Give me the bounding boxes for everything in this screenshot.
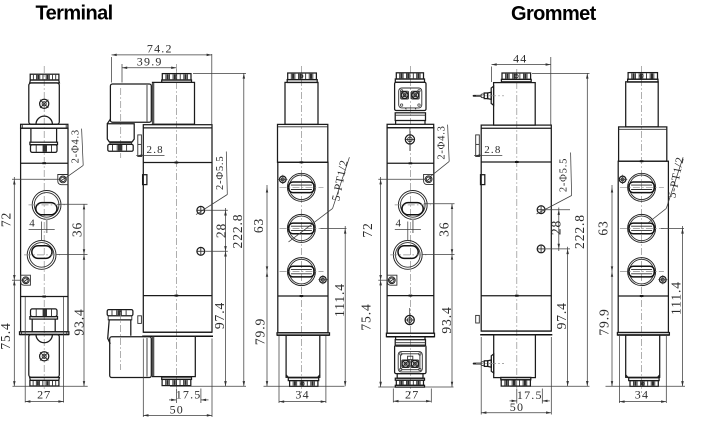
svg-text:36: 36	[436, 222, 451, 237]
svg-text:36: 36	[70, 222, 85, 237]
svg-text:97.4: 97.4	[554, 302, 569, 329]
svg-text:39.9: 39.9	[137, 54, 163, 68]
svg-text:93.4: 93.4	[439, 306, 454, 333]
svg-text:2-Φ5.5: 2-Φ5.5	[215, 156, 226, 190]
svg-text:72: 72	[360, 222, 375, 237]
svg-text:75.4: 75.4	[0, 322, 13, 349]
svg-text:72: 72	[0, 212, 13, 227]
svg-text:79.9: 79.9	[252, 318, 267, 345]
svg-text:63: 63	[251, 218, 266, 233]
svg-text:27: 27	[37, 388, 51, 402]
svg-text:44: 44	[513, 51, 527, 65]
svg-text:2-Φ5.5: 2-Φ5.5	[559, 158, 570, 192]
svg-text:111.4: 111.4	[669, 281, 684, 315]
svg-text:50: 50	[510, 400, 524, 414]
svg-text:79.9: 79.9	[597, 308, 612, 335]
svg-text:Terminal: Terminal	[36, 3, 113, 25]
svg-text:34: 34	[295, 388, 309, 402]
svg-text:4: 4	[29, 217, 36, 229]
svg-text:75.4: 75.4	[359, 303, 374, 330]
svg-text:63: 63	[596, 220, 611, 235]
svg-text:27: 27	[405, 388, 419, 402]
svg-text:2-Φ4.3: 2-Φ4.3	[71, 129, 82, 163]
svg-text:2-Φ4.3: 2-Φ4.3	[437, 125, 448, 159]
svg-text:28: 28	[213, 223, 228, 238]
svg-text:Grommet: Grommet	[511, 3, 597, 25]
svg-text:111.4: 111.4	[332, 283, 347, 317]
svg-text:74.2: 74.2	[147, 41, 173, 55]
svg-text:222.8: 222.8	[572, 214, 587, 249]
svg-text:28: 28	[549, 220, 564, 235]
svg-text:4: 4	[395, 217, 402, 229]
svg-text:34: 34	[635, 388, 649, 402]
svg-text:2.8: 2.8	[484, 144, 501, 156]
svg-text:222.8: 222.8	[230, 214, 245, 249]
svg-text:2.8: 2.8	[147, 144, 164, 156]
svg-text:50: 50	[170, 402, 184, 416]
svg-text:97.4: 97.4	[212, 302, 227, 329]
svg-text:93.4: 93.4	[71, 308, 86, 335]
svg-text:17.5: 17.5	[176, 387, 202, 401]
